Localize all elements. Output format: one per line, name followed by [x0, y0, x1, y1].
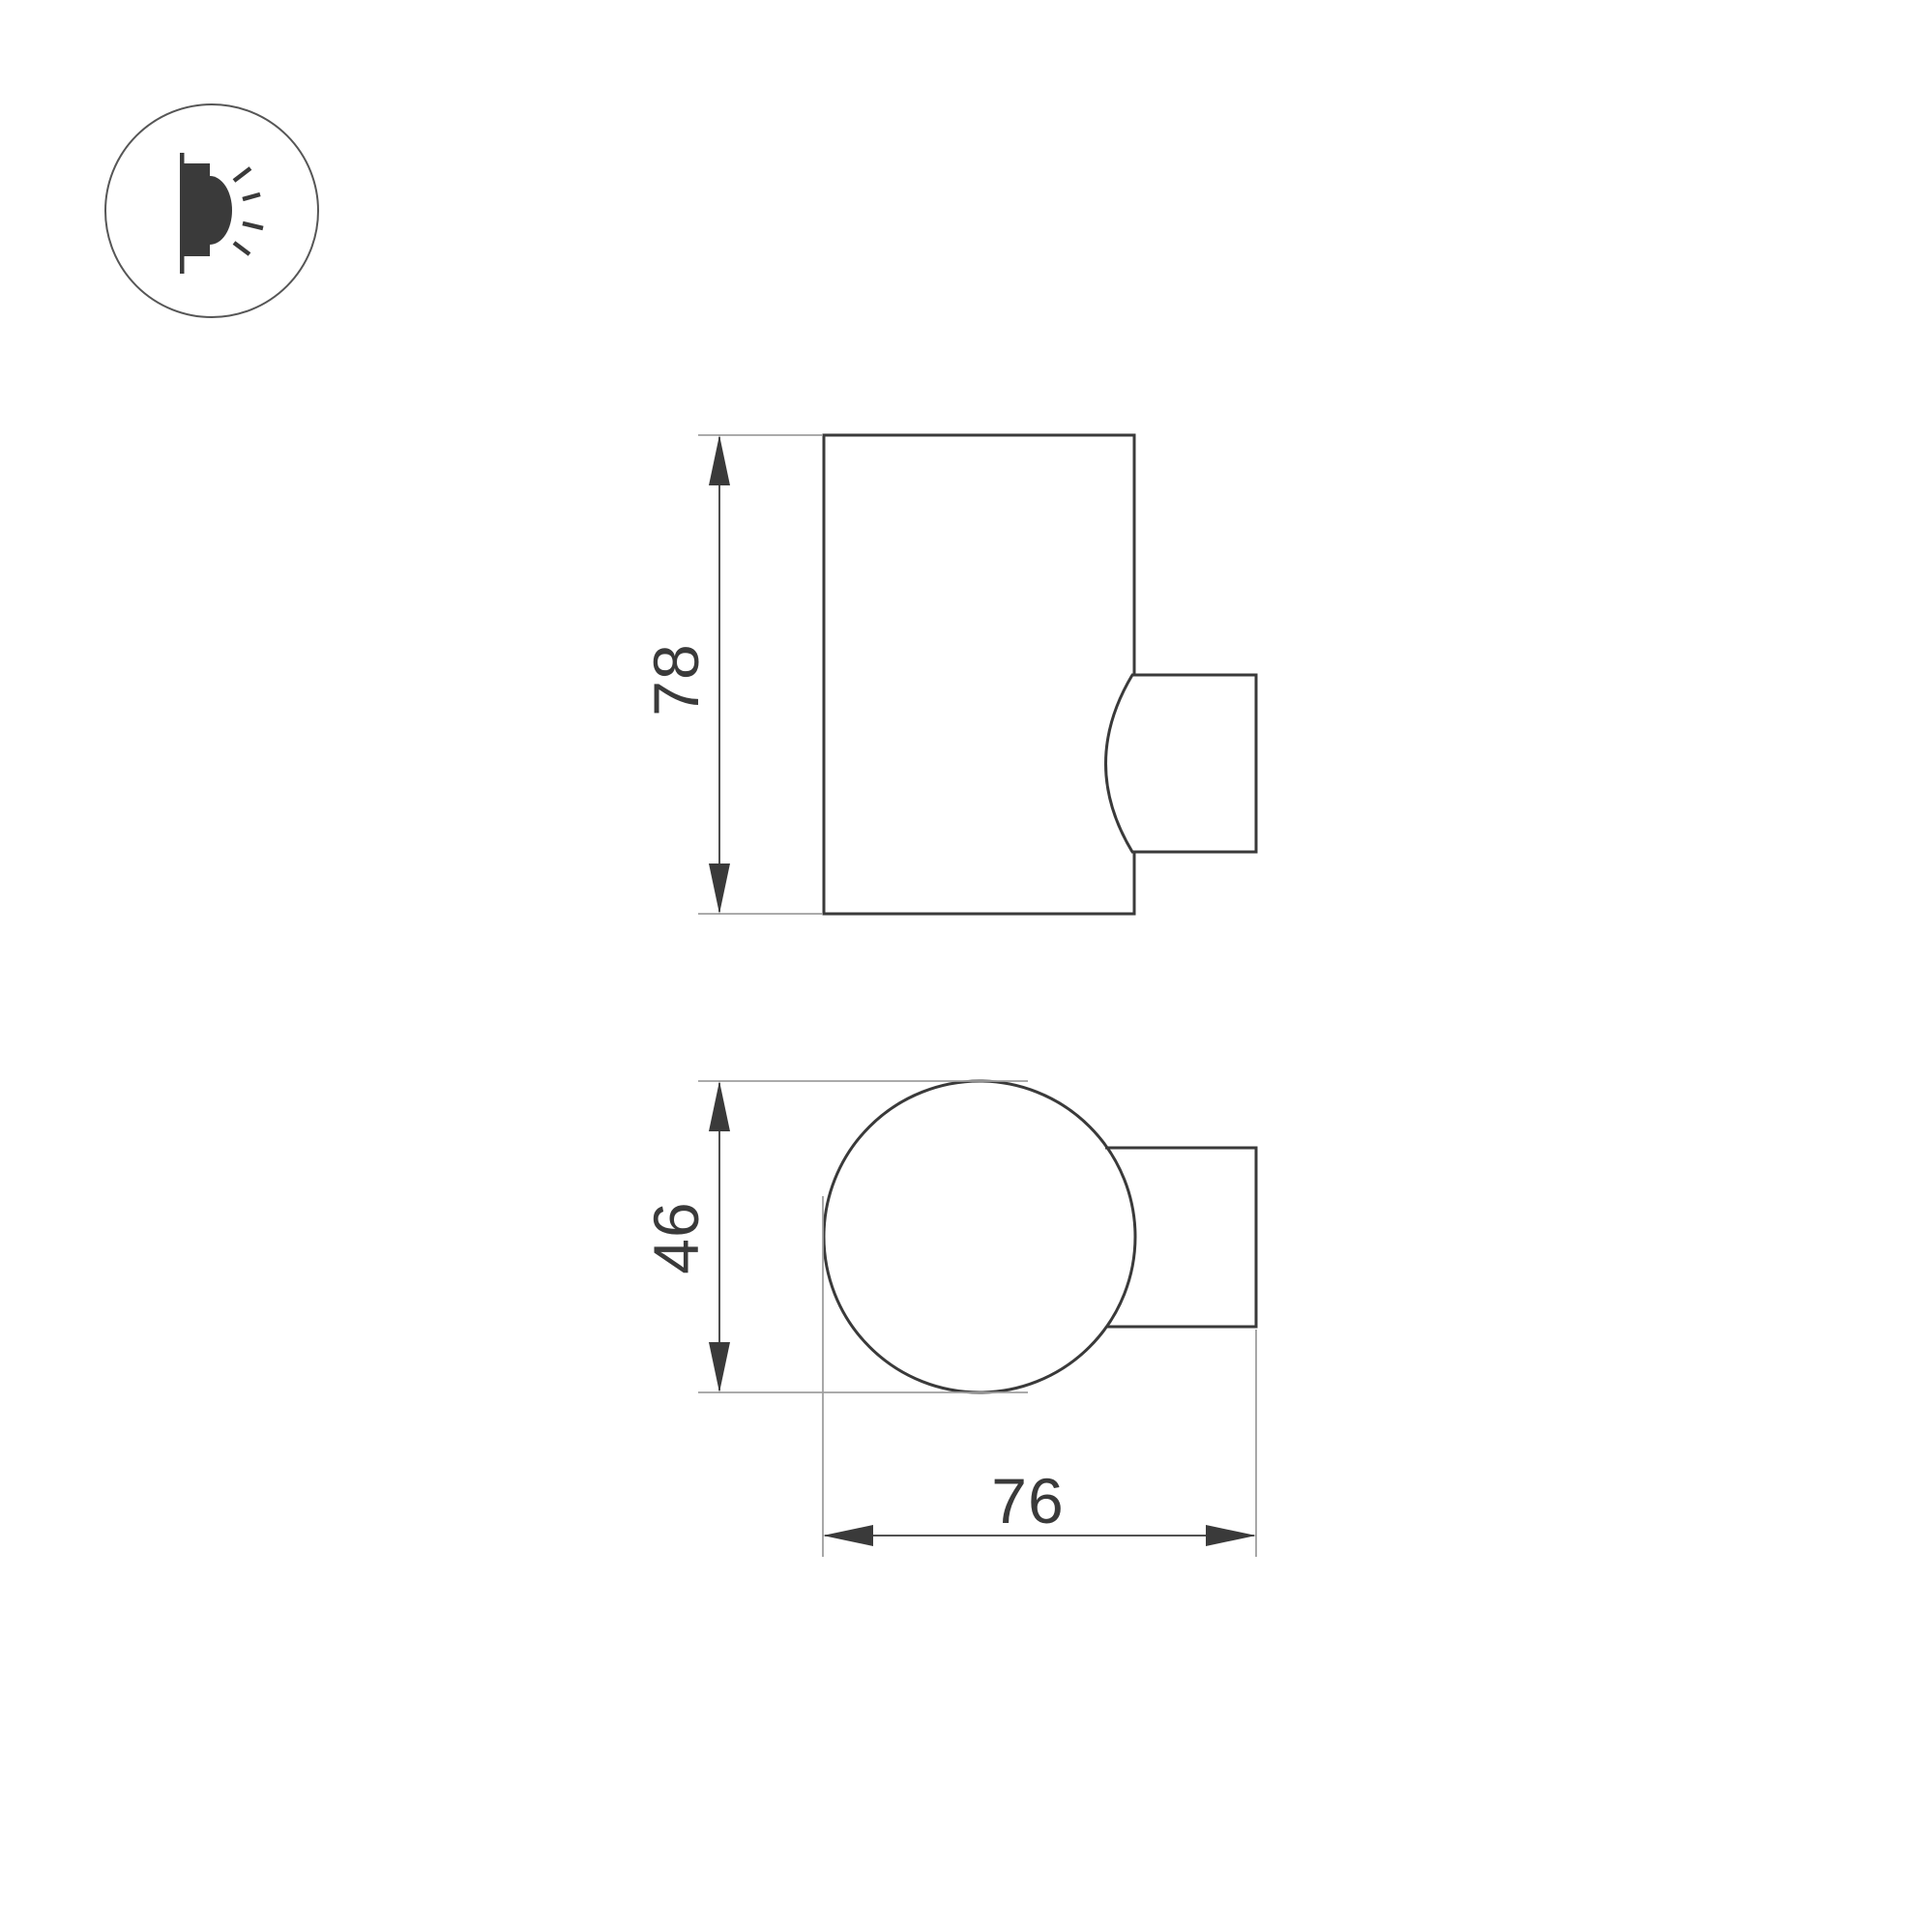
arrow-down-icon: [709, 1342, 730, 1392]
wall-icon: [180, 153, 185, 274]
top-view-mount-bracket: [1105, 1148, 1256, 1327]
arrow-right-icon: [1206, 1525, 1256, 1546]
side-view-body-outline: [824, 435, 1134, 914]
product-badge: [105, 104, 318, 317]
arrow-up-icon: [709, 1081, 730, 1131]
dimension-value-diameter: 46: [640, 1201, 712, 1273]
side-view: 78: [640, 435, 1256, 914]
dimension-depth-76: 76: [823, 1196, 1256, 1557]
lamp-body-icon: [185, 163, 211, 256]
dimension-drawing: 78 46 76: [0, 0, 1932, 1932]
arrow-down-icon: [709, 864, 730, 914]
side-view-mount-bracket: [1131, 675, 1256, 852]
dimension-diameter-46: 46: [640, 1081, 1028, 1392]
top-view: 46 76: [640, 1081, 1256, 1557]
arrow-left-icon: [823, 1525, 873, 1546]
top-view-body-circle: [824, 1081, 1135, 1392]
side-view-bracket-curve: [1106, 675, 1133, 852]
dimension-value-height: 78: [640, 643, 712, 716]
arrow-up-icon: [709, 435, 730, 485]
dimension-height-78: 78: [640, 435, 823, 914]
dimension-value-depth: 76: [991, 1465, 1064, 1537]
